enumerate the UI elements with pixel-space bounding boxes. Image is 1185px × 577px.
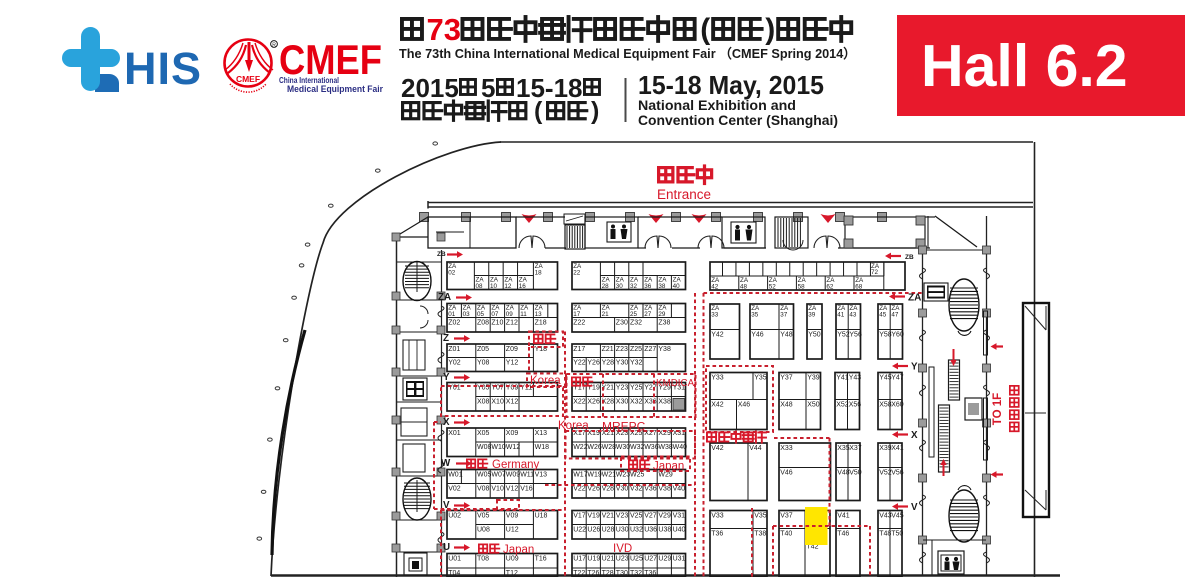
svg-text:Y46: Y46 — [751, 332, 764, 339]
svg-text:U28: U28 — [602, 527, 615, 534]
svg-text:Korea: Korea — [530, 375, 561, 387]
svg-text:U40: U40 — [673, 527, 686, 534]
svg-text:Z30: Z30 — [616, 320, 628, 327]
svg-text:U21: U21 — [602, 556, 615, 563]
svg-text:T22: T22 — [573, 570, 585, 577]
svg-text:W29: W29 — [658, 472, 673, 479]
svg-text:28: 28 — [602, 283, 610, 290]
svg-text:V44: V44 — [749, 445, 762, 452]
svg-text:X52: X52 — [836, 402, 849, 409]
svg-text:17: 17 — [573, 311, 581, 318]
svg-text:V42: V42 — [711, 445, 724, 452]
svg-text:V50: V50 — [849, 470, 862, 477]
svg-text:35: 35 — [751, 311, 759, 318]
svg-text:Y08: Y08 — [477, 360, 490, 367]
svg-text:V29: V29 — [658, 513, 671, 520]
svg-text:Z32: Z32 — [630, 320, 642, 327]
svg-text:IVD: IVD — [613, 543, 632, 555]
svg-text:W36: W36 — [644, 444, 659, 451]
svg-text:30: 30 — [616, 283, 624, 290]
svg-text:38: 38 — [658, 283, 666, 290]
svg-text:V52: V52 — [879, 470, 892, 477]
svg-text:X38: X38 — [658, 399, 671, 406]
svg-text:W38: W38 — [658, 444, 673, 451]
svg-text:V36: V36 — [644, 486, 657, 493]
svg-text:T08: T08 — [477, 556, 489, 563]
svg-text:03: 03 — [463, 311, 471, 318]
svg-text:T38: T38 — [754, 531, 766, 538]
svg-text:V02: V02 — [448, 486, 461, 493]
svg-text:58: 58 — [798, 283, 806, 290]
svg-text:15-18: 15-18 — [516, 73, 583, 103]
svg-text:CMEF: CMEF — [236, 74, 260, 84]
svg-text:W23: W23 — [616, 472, 631, 479]
svg-text:U31: U31 — [673, 556, 686, 563]
svg-text:Y26: Y26 — [587, 360, 600, 367]
svg-text:W40: W40 — [673, 444, 688, 451]
svg-text:V32: V32 — [630, 486, 643, 493]
svg-text:Z25: Z25 — [630, 346, 642, 353]
svg-text:Y45: Y45 — [879, 375, 892, 382]
svg-text:X50: X50 — [807, 402, 820, 409]
svg-text:W01: W01 — [448, 472, 463, 479]
svg-text:Y58: Y58 — [879, 332, 892, 339]
svg-text:Germany: Germany — [492, 459, 540, 471]
svg-text:Y42: Y42 — [711, 332, 724, 339]
svg-text:Y25: Y25 — [630, 385, 643, 392]
svg-text:W09: W09 — [506, 472, 521, 479]
svg-text:Z01: Z01 — [448, 346, 460, 353]
svg-text:12: 12 — [504, 283, 512, 290]
svg-text:HIS: HIS — [124, 43, 202, 94]
svg-text:Z27: Z27 — [644, 346, 656, 353]
svg-text:U02: U02 — [448, 513, 461, 520]
svg-text:V17: V17 — [573, 513, 586, 520]
svg-text:W07: W07 — [491, 472, 506, 479]
svg-text:41: 41 — [837, 311, 845, 318]
svg-text:X08: X08 — [477, 399, 490, 406]
svg-text:Y38: Y38 — [658, 346, 671, 353]
svg-text:V40: V40 — [673, 486, 686, 493]
svg-text:X58: X58 — [879, 402, 892, 409]
svg-text:U17: U17 — [573, 556, 586, 563]
svg-text:(: ( — [700, 13, 710, 46]
svg-text:Z08: Z08 — [477, 320, 489, 327]
svg-text:02: 02 — [448, 269, 456, 276]
svg-text:Convention Center (Shanghai): Convention Center (Shanghai) — [638, 112, 838, 128]
svg-text:ZB: ZB — [905, 254, 914, 261]
svg-text:U: U — [443, 542, 450, 553]
svg-text:52: 52 — [769, 283, 777, 290]
svg-text:Y35: Y35 — [754, 375, 767, 382]
svg-text:X39: X39 — [879, 445, 892, 452]
svg-text:W26: W26 — [587, 444, 602, 451]
svg-text:X60: X60 — [891, 402, 904, 409]
svg-text:V13: V13 — [535, 472, 548, 479]
svg-text:73: 73 — [427, 12, 461, 47]
svg-text:X41: X41 — [891, 445, 904, 452]
svg-text:V21: V21 — [602, 513, 615, 520]
svg-text:05: 05 — [477, 311, 485, 318]
svg-text:Y33: Y33 — [711, 375, 724, 382]
svg-text:U30: U30 — [616, 527, 629, 534]
svg-text:X12: X12 — [506, 399, 519, 406]
svg-text:U29: U29 — [658, 556, 671, 563]
svg-text:W05: W05 — [477, 472, 492, 479]
svg-text:Y23: Y23 — [616, 385, 629, 392]
svg-text:T50: T50 — [891, 531, 903, 538]
svg-text:V30: V30 — [616, 486, 629, 493]
svg-text:W08: W08 — [477, 444, 492, 451]
svg-text:X: X — [911, 430, 918, 441]
svg-text:W12: W12 — [506, 444, 521, 451]
svg-text:W19: W19 — [587, 472, 602, 479]
svg-text:): ) — [591, 97, 599, 125]
svg-text:T04: T04 — [448, 570, 460, 577]
svg-text:U27: U27 — [644, 556, 657, 563]
svg-text:U08: U08 — [477, 527, 490, 534]
svg-text:Y12: Y12 — [506, 360, 519, 367]
svg-text:Z05: Z05 — [477, 346, 489, 353]
svg-text:62: 62 — [826, 283, 834, 290]
svg-text:Y41: Y41 — [836, 375, 849, 382]
svg-text:45: 45 — [879, 311, 887, 318]
svg-text:T12: T12 — [506, 570, 518, 577]
svg-text:V08: V08 — [477, 486, 490, 493]
svg-text:U23: U23 — [616, 556, 629, 563]
svg-text:32: 32 — [630, 283, 638, 290]
svg-text:V12: V12 — [506, 486, 519, 493]
svg-text:Z22: Z22 — [573, 320, 585, 327]
svg-text:ZA: ZA — [438, 292, 451, 303]
svg-text:21: 21 — [602, 311, 610, 318]
svg-text:25: 25 — [630, 311, 638, 318]
svg-text:W30: W30 — [616, 444, 631, 451]
svg-text:U36: U36 — [644, 527, 657, 534]
svg-text:V35: V35 — [754, 513, 767, 520]
svg-text:V56: V56 — [891, 470, 904, 477]
svg-text:V27: V27 — [644, 513, 657, 520]
svg-text:W22: W22 — [573, 444, 588, 451]
svg-text:X05: X05 — [477, 430, 490, 437]
svg-text:R: R — [272, 43, 276, 49]
svg-text:V05: V05 — [477, 513, 490, 520]
svg-text:27: 27 — [644, 311, 652, 318]
svg-text:X: X — [443, 417, 450, 428]
svg-text:42: 42 — [711, 283, 719, 290]
svg-text:U19: U19 — [587, 556, 600, 563]
svg-text:Y: Y — [443, 372, 450, 383]
svg-text:KMDICA: KMDICA — [656, 378, 695, 389]
svg-text:ZA: ZA — [908, 293, 921, 304]
svg-text:V43: V43 — [879, 513, 892, 520]
svg-text:X10: X10 — [491, 399, 504, 406]
svg-text:Y39: Y39 — [807, 375, 820, 382]
svg-text:10: 10 — [490, 283, 498, 290]
svg-text:MREPC: MREPC — [602, 420, 646, 434]
svg-text:Y: Y — [911, 362, 918, 373]
svg-text:X01: X01 — [448, 430, 461, 437]
svg-text:W11: W11 — [520, 472, 534, 479]
svg-text:T30: T30 — [616, 570, 628, 577]
svg-text:T36: T36 — [711, 531, 723, 538]
svg-text:X26: X26 — [587, 399, 600, 406]
svg-text:5: 5 — [481, 73, 495, 103]
svg-text:U25: U25 — [630, 556, 643, 563]
svg-text:U22: U22 — [573, 527, 586, 534]
svg-text:Y30: Y30 — [616, 360, 629, 367]
svg-text:43: 43 — [849, 311, 857, 318]
svg-text:68: 68 — [855, 283, 863, 290]
svg-text:X22: X22 — [573, 399, 586, 406]
svg-text:W18: W18 — [535, 444, 550, 451]
svg-text:V16: V16 — [520, 486, 533, 493]
svg-text:Entrance: Entrance — [657, 187, 711, 202]
svg-text:V33: V33 — [711, 513, 724, 520]
svg-text:U18: U18 — [535, 513, 548, 520]
svg-text:T26: T26 — [587, 570, 599, 577]
svg-text:V22: V22 — [573, 486, 586, 493]
svg-text:T32: T32 — [630, 570, 642, 577]
svg-text:15-18 May, 2015: 15-18 May, 2015 — [638, 70, 824, 100]
svg-text:W28: W28 — [602, 444, 617, 451]
svg-text:Y50: Y50 — [808, 332, 821, 339]
svg-text:V09: V09 — [506, 513, 519, 520]
svg-text:Hall 6.2: Hall 6.2 — [921, 33, 1128, 99]
svg-text:Z18: Z18 — [535, 320, 547, 327]
svg-text:47: 47 — [891, 311, 899, 318]
svg-text:T40: T40 — [780, 531, 792, 538]
svg-text:T16: T16 — [535, 556, 547, 563]
svg-text:Y32: Y32 — [630, 360, 643, 367]
svg-text:V25: V25 — [630, 513, 643, 520]
svg-text:National Exhibition and: National Exhibition and — [638, 97, 796, 113]
svg-text:V45: V45 — [891, 513, 904, 520]
svg-text:V38: V38 — [658, 486, 671, 493]
svg-text:13: 13 — [535, 311, 543, 318]
svg-text:W10: W10 — [491, 444, 506, 451]
svg-text:Y56: Y56 — [849, 332, 862, 339]
svg-text:X56: X56 — [849, 402, 862, 409]
svg-text:22: 22 — [573, 269, 581, 276]
svg-text:W32: W32 — [630, 444, 645, 451]
svg-text:): ) — [765, 13, 775, 46]
svg-text:16: 16 — [519, 283, 527, 290]
svg-text:Z23: Z23 — [616, 346, 628, 353]
svg-text:U32: U32 — [630, 527, 643, 534]
svg-text:08: 08 — [476, 283, 484, 290]
svg-text:V28: V28 — [602, 486, 615, 493]
svg-text:T36: T36 — [644, 570, 656, 577]
svg-text:2015: 2015 — [401, 73, 459, 103]
svg-text:36: 36 — [644, 283, 652, 290]
svg-text:Z09: Z09 — [506, 346, 518, 353]
svg-text:Y43: Y43 — [849, 375, 862, 382]
svg-text:U09: U09 — [506, 556, 519, 563]
svg-text:X48: X48 — [780, 402, 793, 409]
svg-text:V31: V31 — [673, 513, 686, 520]
svg-text:Y60: Y60 — [891, 332, 904, 339]
svg-text:09: 09 — [506, 311, 514, 318]
svg-text:U12: U12 — [506, 527, 519, 534]
svg-text:U38: U38 — [658, 527, 671, 534]
svg-text:X42: X42 — [711, 402, 724, 409]
svg-text:Japan: Japan — [503, 544, 534, 556]
svg-text:V19: V19 — [587, 513, 600, 520]
svg-text:X13: X13 — [535, 430, 548, 437]
svg-text:Z21: Z21 — [602, 346, 614, 353]
svg-text:Y02: Y02 — [448, 360, 461, 367]
svg-text:V37: V37 — [780, 513, 793, 520]
svg-text:(: ( — [534, 97, 543, 125]
svg-text:W17: W17 — [573, 472, 588, 479]
svg-text:07: 07 — [491, 311, 499, 318]
svg-text:Y37: Y37 — [780, 375, 793, 382]
svg-text:U01: U01 — [448, 556, 461, 563]
svg-text:Z12: Z12 — [506, 320, 518, 327]
svg-text:V41: V41 — [837, 513, 850, 520]
svg-text:V48: V48 — [837, 470, 850, 477]
svg-text:W25: W25 — [630, 472, 645, 479]
svg-text:X33: X33 — [780, 445, 793, 452]
svg-text:The 73th China International M: The 73th China International Medical Equ… — [399, 46, 856, 61]
svg-text:01: 01 — [448, 311, 456, 318]
svg-text:Y28: Y28 — [602, 360, 615, 367]
svg-text:X09: X09 — [506, 430, 519, 437]
svg-text:X30: X30 — [616, 399, 629, 406]
svg-text:Medical Equipment Fair: Medical Equipment Fair — [287, 84, 383, 95]
svg-text:Z: Z — [443, 333, 449, 344]
svg-text:Z02: Z02 — [448, 320, 460, 327]
svg-text:V: V — [911, 502, 918, 513]
svg-text:39: 39 — [808, 311, 816, 318]
svg-text:18: 18 — [535, 269, 543, 276]
svg-text:X37: X37 — [849, 445, 862, 452]
svg-text:Y52: Y52 — [837, 332, 850, 339]
svg-text:Z17: Z17 — [573, 346, 585, 353]
svg-text:48: 48 — [740, 283, 748, 290]
svg-text:Korea: Korea — [558, 420, 589, 432]
svg-text:T48: T48 — [879, 531, 891, 538]
svg-text:Japan: Japan — [653, 461, 684, 473]
svg-text:Y48: Y48 — [780, 332, 793, 339]
svg-text:U26: U26 — [587, 527, 600, 534]
svg-text:Z10: Z10 — [491, 320, 503, 327]
svg-text:W: W — [441, 458, 451, 469]
svg-text:V26: V26 — [587, 486, 600, 493]
svg-text:29: 29 — [658, 311, 666, 318]
svg-text:X46: X46 — [738, 402, 751, 409]
svg-text:W21: W21 — [602, 472, 617, 479]
svg-text:V23: V23 — [616, 513, 629, 520]
svg-text:V10: V10 — [491, 486, 504, 493]
svg-text:40: 40 — [673, 283, 681, 290]
svg-text:Y47: Y47 — [891, 375, 904, 382]
svg-text:X32: X32 — [630, 399, 643, 406]
svg-text:V46: V46 — [780, 470, 793, 477]
svg-text:Z38: Z38 — [658, 320, 670, 327]
svg-text:T46: T46 — [837, 531, 849, 538]
svg-text:T28: T28 — [602, 570, 614, 577]
svg-text:37: 37 — [780, 311, 788, 318]
svg-text:72: 72 — [871, 269, 879, 276]
svg-text:33: 33 — [711, 311, 719, 318]
svg-text:Y22: Y22 — [573, 360, 586, 367]
svg-text:11: 11 — [520, 311, 527, 318]
svg-text:X35: X35 — [837, 445, 850, 452]
svg-text:TO 1F: TO 1F — [992, 393, 1004, 425]
